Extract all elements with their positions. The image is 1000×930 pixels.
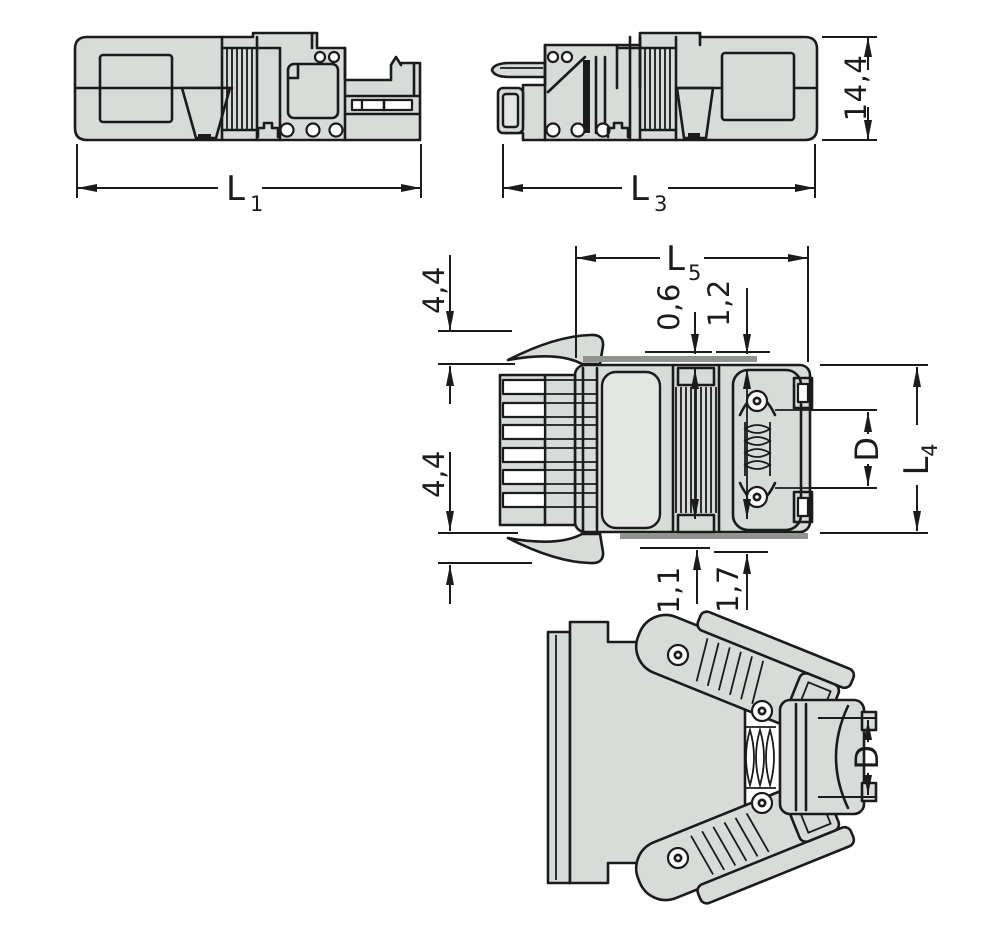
screw-hole	[547, 124, 560, 137]
strain-relief-spring	[746, 730, 774, 785]
screw-hole	[330, 124, 343, 137]
top-view: L 5 0,6 1,2 4,4 4,4	[417, 239, 942, 614]
dim-label-1-2: 1,2	[702, 279, 736, 327]
dim-label-4-4-mid: 4,4	[417, 450, 451, 498]
dim-label-4-4-top: 4,4	[417, 266, 451, 314]
dim-label-L5-sub: 5	[688, 261, 701, 285]
drawing-svg: L 1 L 3	[0, 0, 1000, 930]
side-view-right: L 3 14,4	[492, 33, 877, 216]
dimension-L1: L 1	[77, 144, 421, 216]
dim-label-1-7: 1,7	[711, 565, 745, 613]
dimension-D-top-view: D	[810, 410, 886, 488]
funnel-detail	[677, 88, 713, 138]
screw-hole	[281, 124, 294, 137]
dim-label-L5: L	[666, 239, 685, 279]
mounting-strip	[548, 632, 570, 883]
angled-bottom-view: D	[548, 591, 886, 924]
side-view-left: L 1	[75, 33, 421, 216]
dimension-14-4: 14,4	[822, 37, 877, 140]
dim-label-D-angled: D	[848, 744, 886, 769]
dimension-1-2: 1,2	[702, 279, 770, 354]
dim-label-L1: L	[226, 169, 245, 209]
dim-label-L3-sub: 3	[654, 192, 667, 216]
screw-hole	[329, 52, 339, 62]
dimension-L3: L 3	[503, 144, 815, 216]
screw-hole	[572, 124, 585, 137]
dim-label-L3: L	[630, 169, 649, 209]
dimension-1-1: 1,1	[640, 548, 710, 614]
screw-hole	[562, 52, 572, 62]
dim-label-L4: L	[897, 456, 937, 475]
screw-hole	[315, 52, 325, 62]
dimension-1-7: 1,7	[711, 552, 768, 613]
lever-pin	[492, 63, 545, 77]
dim-label-L1-sub: 1	[250, 192, 263, 216]
screw-hole	[548, 52, 558, 62]
screw-hole	[307, 124, 320, 137]
marking-window	[602, 372, 660, 528]
locking-latch-bottom	[508, 534, 603, 563]
dim-label-L4-sub: 4	[918, 443, 942, 456]
housing-window	[722, 53, 794, 120]
dim-label-14-4: 14,4	[839, 55, 873, 122]
dim-label-0-6: 0,6	[652, 283, 686, 331]
dim-label-D-top: D	[848, 436, 886, 461]
technical-drawing-page: L 1 L 3	[0, 0, 1000, 930]
cable-gland	[733, 370, 812, 530]
plate-inner-panel	[288, 64, 338, 118]
dimension-L5: L 5	[576, 239, 808, 362]
dim-label-1-1: 1,1	[652, 566, 686, 614]
